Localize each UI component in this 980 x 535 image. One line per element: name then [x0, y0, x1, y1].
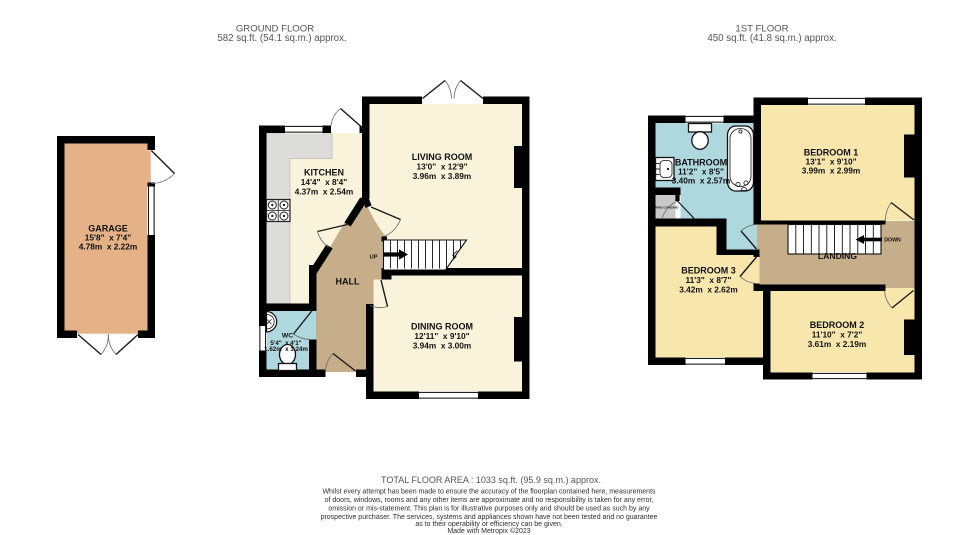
svg-text:omission or mis-statement. Thi: omission or mis-statement. This plan is …	[328, 506, 650, 513]
svg-text:as to their operability or eff: as to their operability or efficiency ca…	[415, 521, 562, 528]
svg-text:WC: WC	[282, 333, 293, 340]
svg-text:prospective purchaser. The ser: prospective purchaser. The services, sys…	[321, 514, 658, 521]
svg-text:11'10" x 7'2": 11'10" x 7'2"	[812, 330, 863, 340]
svg-text:1.62m x 1.24m: 1.62m x 1.24m	[264, 346, 308, 353]
svg-text:DOWN: DOWN	[884, 238, 901, 244]
svg-text:4.78m x 2.22m: 4.78m x 2.22m	[79, 242, 138, 252]
svg-text:Whilst every attempt has been: Whilst every attempt has been made to en…	[322, 489, 656, 496]
svg-text:4.37m x 2.54m: 4.37m x 2.54m	[295, 187, 354, 197]
svg-text:KITCHEN: KITCHEN	[304, 168, 344, 178]
svg-text:3.40m x 2.57m: 3.40m x 2.57m	[672, 176, 731, 186]
svg-text:12'11" x 9'10": 12'11" x 9'10"	[414, 331, 469, 341]
svg-text:14'4" x 8'4": 14'4" x 8'4"	[301, 177, 347, 187]
svg-text:Made with Metropix ©2023: Made with Metropix ©2023	[447, 527, 530, 535]
svg-text:3.94m x 3.00m: 3.94m x 3.00m	[413, 341, 472, 351]
svg-text:3.61m x 2.19m: 3.61m x 2.19m	[808, 339, 867, 349]
svg-text:450 sq.ft. (41.8 sq.m.) approx: 450 sq.ft. (41.8 sq.m.) approx.	[707, 33, 836, 44]
svg-text:of doors, windows, rooms and a: of doors, windows, rooms and any other i…	[325, 497, 654, 504]
svg-text:3.96m x 3.89m: 3.96m x 3.89m	[413, 171, 472, 181]
svg-text:3.42m x 2.62m: 3.42m x 2.62m	[679, 285, 738, 295]
svg-text:11'3" x 8'7": 11'3" x 8'7"	[686, 275, 732, 285]
svg-text:UP: UP	[369, 255, 377, 261]
svg-text:DINING ROOM: DINING ROOM	[411, 322, 473, 332]
svg-text:LANDING: LANDING	[818, 251, 857, 261]
svg-text:HALL: HALL	[336, 277, 360, 287]
svg-text:BEDROOM 2: BEDROOM 2	[810, 320, 865, 330]
svg-text:AIRING CUPBOARD: AIRING CUPBOARD	[654, 205, 679, 209]
svg-text:582 sq.ft. (54.1 sq.m.) approx: 582 sq.ft. (54.1 sq.m.) approx.	[217, 33, 346, 44]
svg-text:LIVING ROOM: LIVING ROOM	[412, 152, 473, 162]
svg-text:TOTAL FLOOR AREA : 1033 sq.ft.: TOTAL FLOOR AREA : 1033 sq.ft. (95.9 sq.…	[381, 475, 601, 485]
svg-text:3.99m x 2.99m: 3.99m x 2.99m	[802, 166, 861, 176]
svg-text:BEDROOM 3: BEDROOM 3	[681, 266, 736, 276]
svg-text:13'0" x 12'9": 13'0" x 12'9"	[416, 162, 467, 172]
